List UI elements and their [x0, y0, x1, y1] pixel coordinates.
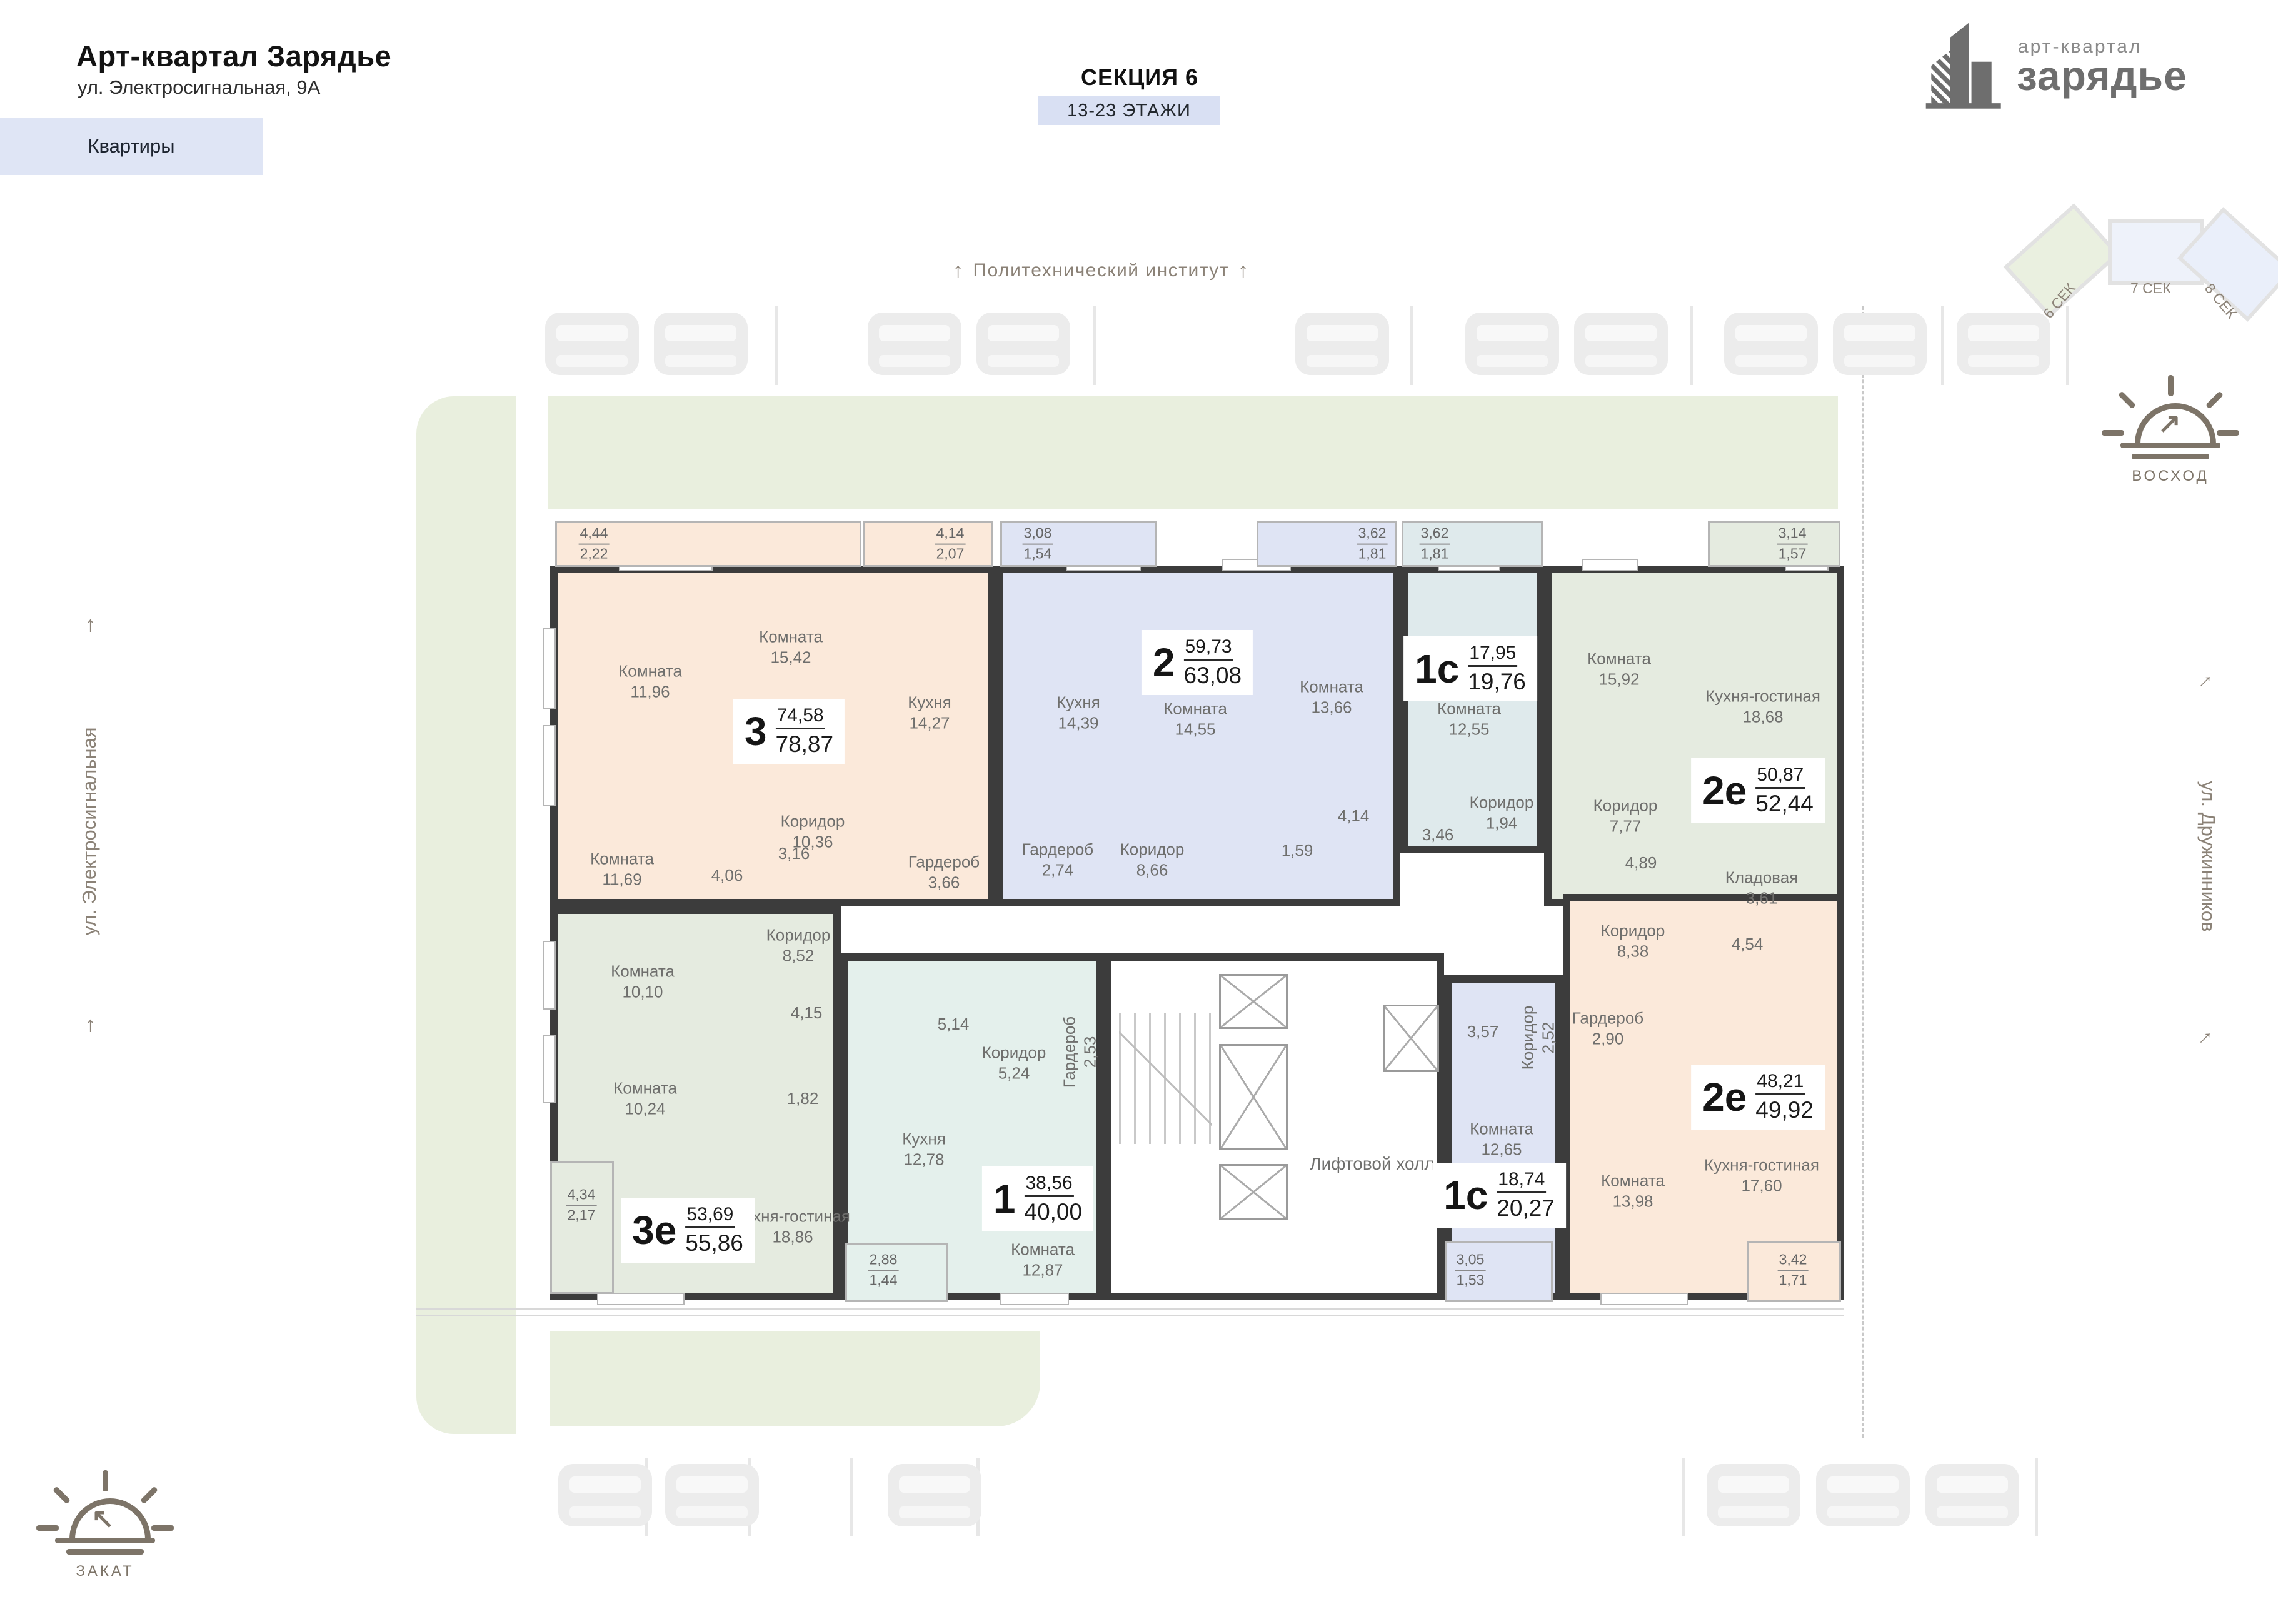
room-label: Кухня-гостиная17,60 [1704, 1155, 1819, 1196]
room-label: Комната15,92 [1587, 649, 1651, 689]
site-line [416, 1308, 1844, 1310]
room-label: 1,59 [1282, 840, 1313, 861]
section-title: СЕКЦИЯ 6 [1027, 64, 1252, 91]
window [543, 725, 556, 806]
room-label: Комната12,55 [1437, 699, 1501, 739]
street-label-right: ул. Дружинников [2197, 781, 2219, 931]
room-label: Комната10,24 [613, 1078, 677, 1119]
car-icon [888, 1464, 981, 1526]
balcony [1708, 521, 1840, 567]
floors-badge: 13-23 ЭТАЖИ [1038, 96, 1220, 125]
page-canvas: Арт-квартал Зарядье ул. Электросигнальна… [0, 0, 2278, 1624]
room-label: 3,16 [778, 843, 810, 864]
room-label: 4,89 [1625, 853, 1657, 873]
page-title: Арт-квартал Зарядье [76, 39, 391, 73]
balcony-label: 3,141,57 [1777, 524, 1808, 564]
car-icon [665, 1464, 759, 1526]
window [543, 1035, 556, 1103]
arrow-up-icon: ↑ [2194, 669, 2219, 694]
apartment-apt-2e-top-region[interactable] [1544, 566, 1844, 906]
balcony [863, 521, 993, 567]
street-label-left: ул. Электросигнальная [78, 727, 101, 935]
room-label: Коридор8,66 [1120, 840, 1185, 880]
apartment-apt-2e-top-badge[interactable]: 2е50,8752,44 [1691, 758, 1825, 823]
apartment-apt-3e-badge[interactable]: 3е53,6955,86 [621, 1198, 755, 1263]
elevator-shaft [1219, 974, 1288, 1029]
arrow-up-icon: ↑ [85, 1013, 96, 1037]
room-label: 3,46 [1422, 825, 1454, 845]
balcony [550, 1161, 614, 1294]
room-label: Гардероб2,90 [1572, 1008, 1643, 1049]
room-label: 4,06 [711, 865, 743, 886]
room-label: Кухня14,27 [908, 693, 951, 733]
elevator-shaft [1219, 1044, 1288, 1150]
car-icon [1465, 313, 1559, 375]
minimap-label-7: 7 СЕК [2130, 280, 2171, 297]
arrow-up-icon: ↑ [944, 259, 973, 283]
room-label: Кухня-гостиная18,68 [1705, 686, 1820, 727]
arrow-up-icon: ↑ [85, 613, 96, 637]
car-icon [545, 313, 639, 375]
page-address: ул. Электросигнальная, 9А [78, 76, 320, 99]
room-label: 5,14 [938, 1014, 970, 1035]
lawn-strip-top [548, 396, 1838, 509]
window [543, 628, 556, 709]
car-icon [1925, 1464, 2019, 1526]
elevator-shaft [1219, 1164, 1288, 1220]
lawn-strip-left [416, 396, 516, 1434]
sunset-label: ЗАКАТ [76, 1563, 134, 1580]
car-icon [1816, 1464, 1910, 1526]
room-label: 1,82 [787, 1088, 819, 1109]
parking-divider [1093, 306, 1096, 385]
car-icon [1833, 313, 1927, 375]
balcony-label: 4,142,07 [935, 524, 966, 564]
room-label: Коридор2,52 [1518, 1006, 1558, 1070]
window [543, 941, 556, 1010]
section-boundary-dashed-line [1862, 306, 1864, 1438]
room-label: Коридор8,52 [766, 925, 831, 966]
car-icon [1724, 313, 1818, 375]
apartment-apt-2e-bottom-badge[interactable]: 2е48,2149,92 [1691, 1065, 1825, 1130]
room-label: Комната12,87 [1011, 1240, 1075, 1280]
apartment-apt-1c-top-badge[interactable]: 1с17,9519,76 [1403, 636, 1537, 701]
parking-divider [1941, 306, 1944, 385]
room-label: Комната11,69 [590, 849, 654, 890]
nav-chip-apartments[interactable]: Квартиры [0, 118, 263, 175]
parking-divider [1690, 306, 1693, 385]
parking-divider [1682, 1458, 1685, 1536]
logo-building-icon [1925, 18, 2007, 111]
parking-divider [850, 1458, 853, 1536]
car-icon [1295, 313, 1389, 375]
apartment-apt-1c-bottom-badge[interactable]: 1с18,7420,27 [1432, 1163, 1566, 1228]
parking-divider [2066, 306, 2069, 385]
room-label: Коридор5,24 [982, 1043, 1046, 1083]
room-label: Гардероб2,74 [1022, 840, 1093, 880]
parking-divider [2035, 1458, 2038, 1536]
room-label: Комната11,96 [618, 661, 682, 702]
room-label: 4,15 [791, 1003, 823, 1023]
balcony-label: 2,881,44 [868, 1251, 899, 1290]
window [1000, 1293, 1069, 1305]
room-label: Кухня14,39 [1056, 693, 1100, 733]
room-label: Гардероб3,66 [908, 852, 980, 893]
room-label: Кладовая3,61 [1725, 868, 1798, 908]
balcony-label: 3,621,81 [1357, 524, 1388, 564]
car-icon [654, 313, 748, 375]
room-label: Комната10,10 [611, 961, 675, 1002]
car-icon [558, 1464, 652, 1526]
arrow-up-icon: ↑ [2194, 1025, 2219, 1050]
room-label: Комната14,55 [1163, 699, 1227, 739]
room-label: Комната13,66 [1300, 677, 1363, 718]
car-icon [1707, 1464, 1800, 1526]
stairs-icon [1119, 1013, 1212, 1144]
balcony-label: 4,342,17 [566, 1186, 597, 1225]
room-label: Кухня12,78 [902, 1129, 946, 1170]
car-icon [1574, 313, 1668, 375]
landmark-top: ↑Политехнический институт↑ [944, 258, 1258, 282]
car-icon [976, 313, 1070, 375]
room-label: Комната15,42 [759, 627, 823, 668]
apartment-apt-1-badge[interactable]: 138,5640,00 [982, 1166, 1093, 1231]
balcony-label: 3,421,71 [1778, 1251, 1809, 1290]
room-label: 3,57 [1467, 1021, 1499, 1042]
room-label: Коридор1,94 [1470, 793, 1534, 833]
parking-divider [775, 306, 778, 385]
balcony-label: 3,051,53 [1455, 1251, 1486, 1290]
window [597, 1293, 685, 1305]
balcony-label: 4,442,22 [579, 524, 610, 564]
balcony-label: 3,081,54 [1023, 524, 1053, 564]
room-label: Гардероб2,53 [1060, 1016, 1100, 1088]
logo-text-line2: зарядье [2017, 58, 2187, 94]
parking-divider [1410, 306, 1413, 385]
room-label: Комната12,65 [1470, 1119, 1533, 1160]
window [1600, 1293, 1688, 1305]
car-icon [868, 313, 961, 375]
elevator-hall-label: Лифтовой холл [1303, 1152, 1441, 1176]
apartment-apt-3-badge[interactable]: 374,5878,87 [733, 699, 845, 764]
car-icon [1957, 313, 2050, 375]
sunrise-label: ВОСХОД [2132, 468, 2209, 485]
room-label: 4,54 [1732, 934, 1764, 955]
lawn-strip-bottom [550, 1331, 1040, 1426]
elevator-shaft [1383, 1005, 1439, 1072]
window [1582, 559, 1638, 571]
balcony-label: 3,621,81 [1420, 524, 1450, 564]
room-label: Коридор7,77 [1593, 796, 1658, 836]
site-line [416, 1315, 1844, 1316]
room-label: Комната13,98 [1601, 1171, 1665, 1211]
apartment-apt-2-badge[interactable]: 259,7363,08 [1142, 630, 1253, 695]
room-label: 4,14 [1338, 806, 1370, 826]
room-label: Коридор8,38 [1601, 921, 1665, 961]
arrow-up-icon: ↑ [1229, 259, 1258, 283]
